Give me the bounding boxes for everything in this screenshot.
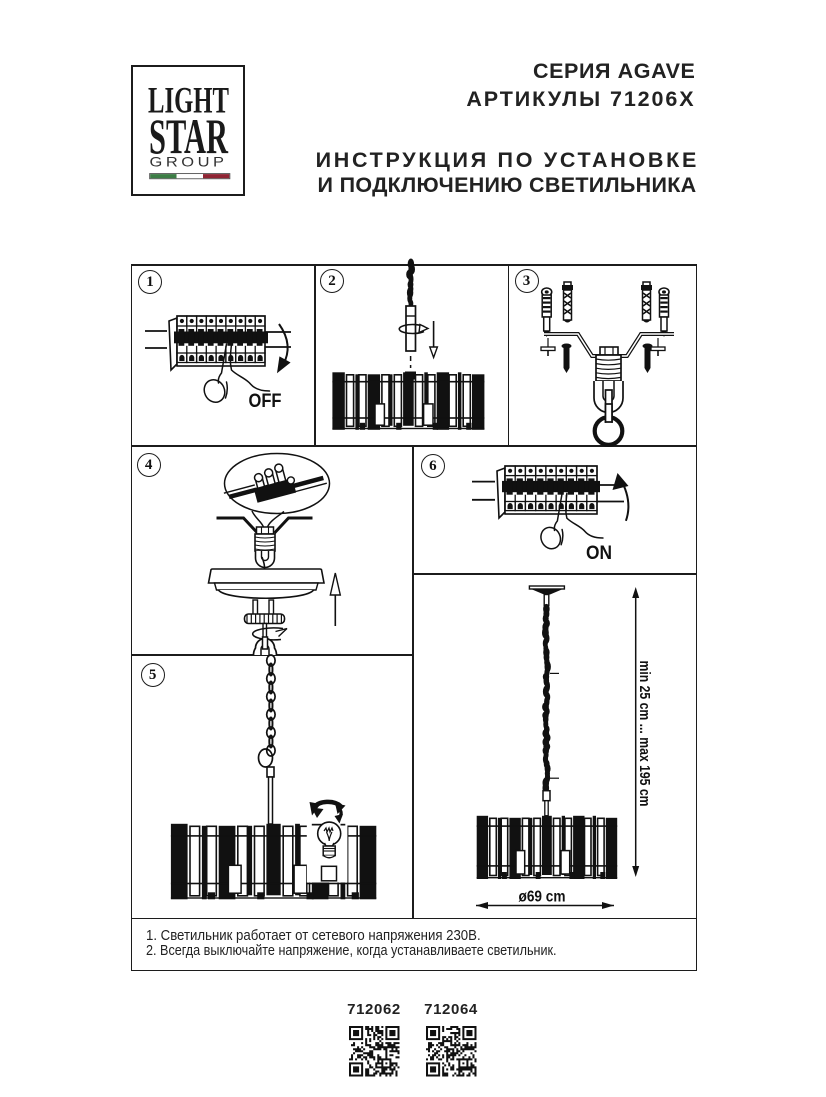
svg-text:min 25 cm ... max 195 cm: min 25 cm ... max 195 cm [636, 661, 652, 807]
svg-text:ø69 cm: ø69 cm [519, 889, 566, 906]
svg-text:GROUP: GROUP [149, 153, 227, 169]
svg-text:OFF: OFF [248, 391, 281, 412]
svg-text:ON: ON [586, 543, 612, 564]
